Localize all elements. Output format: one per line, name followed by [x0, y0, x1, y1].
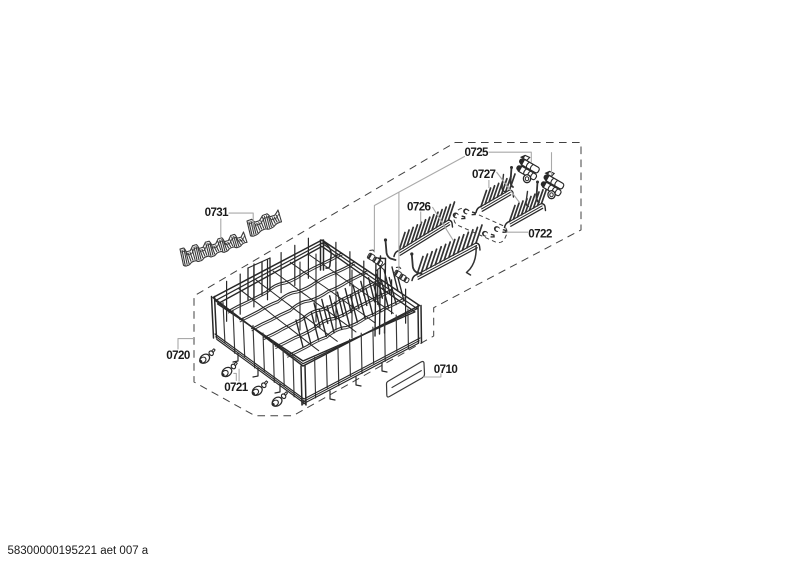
svg-text:0710: 0710	[434, 363, 458, 376]
svg-text:0722: 0722	[528, 227, 552, 240]
svg-text:0727: 0727	[472, 168, 496, 181]
svg-text:0721: 0721	[224, 381, 249, 394]
svg-text:0720: 0720	[166, 349, 190, 362]
svg-text:0731: 0731	[205, 206, 230, 219]
svg-text:58300000195221 aet 007 a: 58300000195221 aet 007 a	[8, 545, 149, 557]
svg-text:0726: 0726	[407, 200, 432, 213]
svg-text:0725: 0725	[465, 146, 490, 159]
